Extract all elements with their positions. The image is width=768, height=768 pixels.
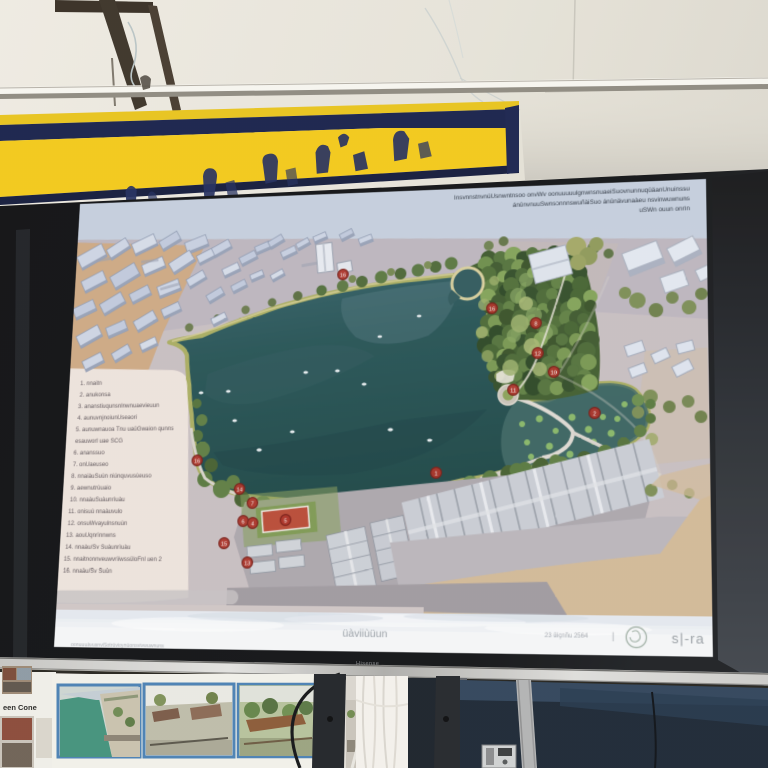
svg-text:13: 13	[244, 560, 251, 567]
svg-text:|: |	[612, 631, 615, 642]
svg-text:6: 6	[241, 519, 245, 526]
svg-text:üàviiùüun: üàviiùüun	[342, 627, 387, 639]
svg-text:1: 1	[434, 471, 437, 478]
svg-text:8. nnaiàuSuùn niúnquvusùeuso: 8. nnaiàuSuùn niúnquvusùeuso	[71, 473, 152, 480]
svg-text:3. ananstiuqunsnlnwnuaevieuun: 3. ananstiuqunsnlnwnuaevieuun	[78, 403, 160, 411]
svg-text:16: 16	[194, 458, 200, 465]
svg-text:5. aunuwnauoa Tnu uaüGwaion q: 5. aunuwnauoa Tnu uaüGwaion qunns	[76, 426, 175, 434]
svg-text:s|-ra: s|-ra	[672, 632, 705, 647]
svg-text:7. onUaeuseo: 7. onUaeuseo	[73, 462, 109, 469]
svg-text:9. aewnutrùuaio: 9. aewnutrùuaio	[70, 485, 111, 492]
svg-text:esauworl uae SCG: esauworl uae SCG	[75, 438, 123, 445]
svg-text:2. anukonsa: 2. anukonsa	[79, 392, 111, 399]
svg-text:4. aunuvnjnoiunUseaori: 4. aunuvnjnoiunUseaori	[77, 415, 137, 422]
svg-text:5: 5	[284, 518, 288, 525]
svg-text:15: 15	[221, 541, 228, 548]
svg-text:4: 4	[251, 521, 255, 528]
svg-text:8: 8	[534, 321, 537, 328]
svg-text:10. nnaàuSuàunrìuàu: 10. nnaàuSuàunrìuàu	[70, 497, 125, 504]
svg-text:16: 16	[489, 306, 496, 313]
svg-text:2: 2	[593, 411, 596, 418]
svg-text:7: 7	[251, 501, 254, 508]
svg-text:12. onsuWvayulnsnuùn: 12. onsuWvayulnsnuùn	[67, 521, 127, 528]
svg-text:11. onisuù nnaàuvulo: 11. onisuù nnaàuvulo	[68, 509, 122, 516]
svg-text:10: 10	[551, 370, 558, 377]
svg-text:11: 11	[510, 388, 516, 395]
svg-text:16: 16	[340, 272, 346, 279]
svg-text:15. nnaitnonnveuwvrìiwssüloFnl: 15. nnaitnonnveuwvrìiwssüloFnl uen 2	[64, 556, 162, 563]
svg-text:6. ananssuo: 6. ananssuo	[73, 450, 104, 457]
svg-text:een Cone: een Cone	[3, 703, 37, 712]
svg-text:23 üìçnñu 2564: 23 üìçnñu 2564	[545, 632, 588, 640]
svg-text:14. nnaàu/Sv Suàunrìuàu: 14. nnaàu/Sv Suàunrìuàu	[65, 544, 131, 551]
svg-text:16. nnaàu/Sv Suùn: 16. nnaàu/Sv Suùn	[63, 568, 112, 575]
svg-text:13. aouUqnrìnnwns: 13. aouUqnrìnnwns	[66, 532, 116, 539]
svg-text:14: 14	[236, 487, 243, 494]
svg-text:1. nnaitn: 1. nnaitn	[80, 380, 102, 387]
svg-text:12: 12	[534, 351, 541, 358]
